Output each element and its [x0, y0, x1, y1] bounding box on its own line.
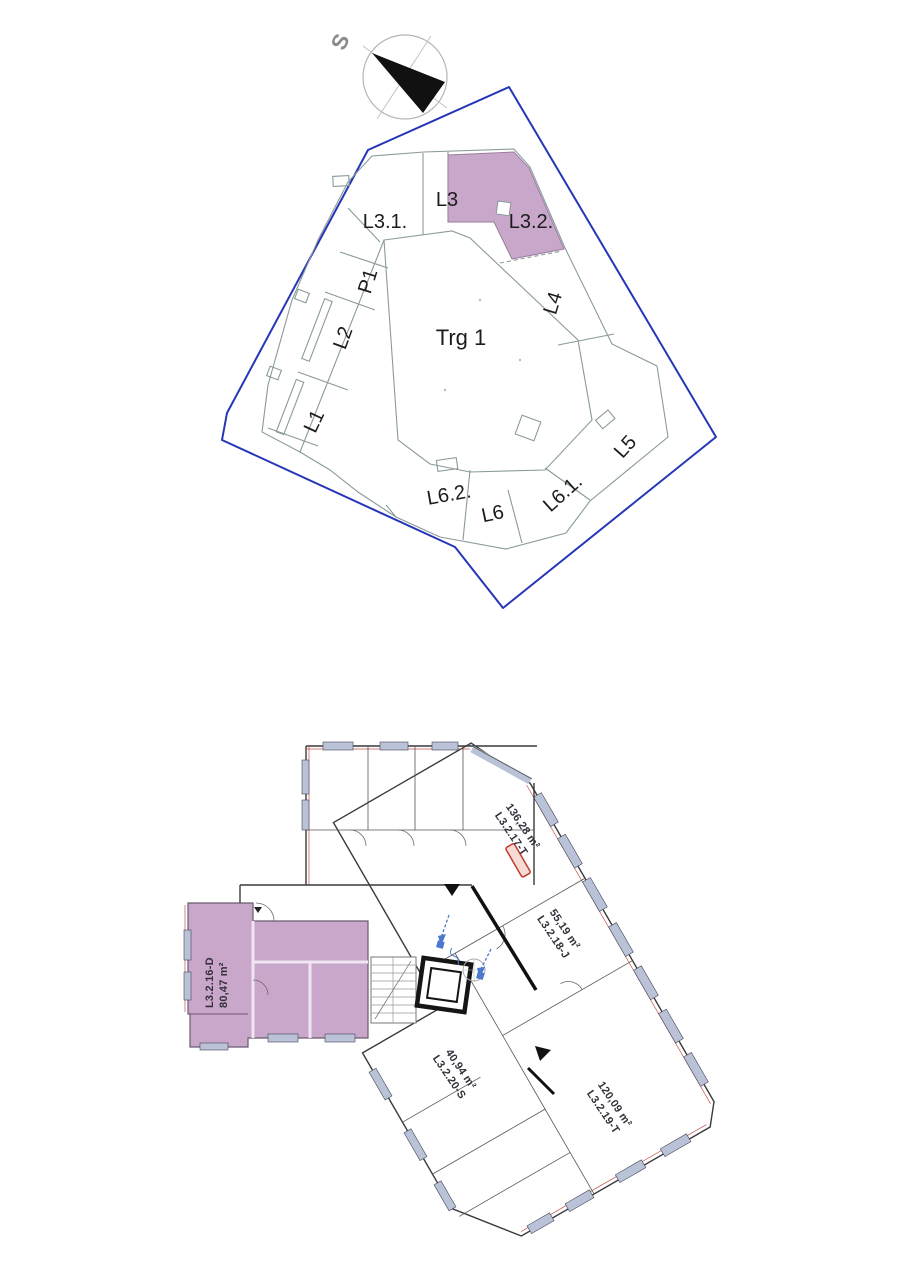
unit-label-l3219t: 120,09 m² L3.2.19-T [583, 1079, 634, 1137]
elevator [417, 958, 471, 1012]
window [583, 877, 608, 911]
block-label-l61: L6.1. [539, 470, 587, 516]
drawing-sheet: S [0, 0, 905, 1280]
block-label-l32: L3.2. [509, 211, 553, 233]
window [609, 923, 634, 957]
window [184, 930, 191, 960]
elevation-marker-icon [254, 907, 262, 913]
entry-door-arc [256, 903, 274, 921]
wing-partition [459, 1152, 570, 1216]
block-label-l62: L6.2. [425, 480, 473, 509]
courtyard-outline [384, 231, 592, 472]
elevator-shaft [417, 958, 471, 1012]
site-dot [444, 389, 446, 391]
door-arc [350, 830, 366, 846]
window [565, 1190, 594, 1212]
unit-area: 80,47 m² [218, 962, 230, 1008]
chamfer-window-band [472, 749, 530, 781]
roof-detail [436, 458, 457, 472]
floor-plan: L3.2.16-D 80,47 m² 136,28 m² L3.2.17-T 5… [184, 725, 730, 1264]
block-label-l5: L5 [610, 431, 641, 462]
block-label-l3: L3 [436, 189, 458, 211]
window [634, 966, 659, 1000]
compass-north-label: S [326, 30, 355, 54]
window [660, 1134, 690, 1157]
window [184, 972, 191, 1000]
north-compass: S [326, 30, 447, 119]
roof-detail [596, 410, 615, 429]
block-label-l4: L4 [539, 289, 567, 317]
block-separator [340, 252, 388, 268]
block-label-l1: L1 [300, 407, 329, 436]
entrance-marker-icon [535, 1046, 551, 1061]
window [268, 1034, 298, 1042]
window [534, 793, 559, 827]
architectural-drawing: S [0, 0, 905, 1280]
corridor-wall-heavy [528, 1068, 554, 1094]
block-label-l31: L3.1. [363, 211, 407, 233]
window [434, 1181, 456, 1211]
door-arc [560, 976, 582, 998]
wing-partition [503, 961, 633, 1036]
shaft-detail [267, 366, 282, 380]
north-arrow-icon [372, 53, 445, 113]
arrow-target [476, 971, 485, 980]
block-label-p1: P1 [354, 266, 382, 296]
window [369, 1068, 392, 1100]
unit-id: L3.2.16-D [204, 957, 216, 1008]
site-plan: S [222, 30, 716, 608]
courtyard-label: Trg 1 [436, 325, 487, 350]
window [325, 1034, 355, 1042]
window [684, 1052, 709, 1086]
block-separator [508, 490, 522, 543]
window [659, 1009, 684, 1043]
site-dot [519, 359, 521, 361]
retaining-wall [300, 452, 396, 517]
door-arc [398, 830, 414, 846]
window [380, 742, 408, 750]
block-separator [298, 372, 348, 390]
window [404, 1129, 427, 1161]
shaft-detail [295, 289, 310, 303]
window [527, 1213, 554, 1234]
window [200, 1043, 228, 1050]
block-label-l6: L6 [480, 501, 506, 527]
window [615, 1160, 645, 1183]
unit-label-l3218j: 55,19 m² L3.2.18-J [534, 906, 583, 961]
site-labels: L3.1. L3 L3.2. P1 L2 L1 L4 L5 L6.1. L6 L… [300, 189, 641, 527]
window [302, 800, 309, 830]
unit-label-l3220s: 40,94 m² L3.2.20-S [430, 1045, 480, 1101]
corridor-detail [302, 299, 332, 362]
arrow-target [436, 940, 445, 949]
block-label-l2: L2 [329, 324, 357, 352]
wing-partition [455, 953, 594, 1194]
window [558, 834, 583, 868]
courtyard-structure [515, 415, 541, 441]
wing-partition [433, 1109, 546, 1174]
door-arc [450, 830, 466, 846]
top-wing [240, 742, 537, 903]
window [323, 742, 353, 750]
entrance-marker-icon [444, 884, 460, 896]
window [432, 742, 458, 750]
block-separator [558, 334, 614, 345]
chamfer-wall [470, 745, 532, 779]
stairs [371, 957, 416, 1023]
window [302, 760, 309, 794]
site-dot [479, 299, 481, 301]
